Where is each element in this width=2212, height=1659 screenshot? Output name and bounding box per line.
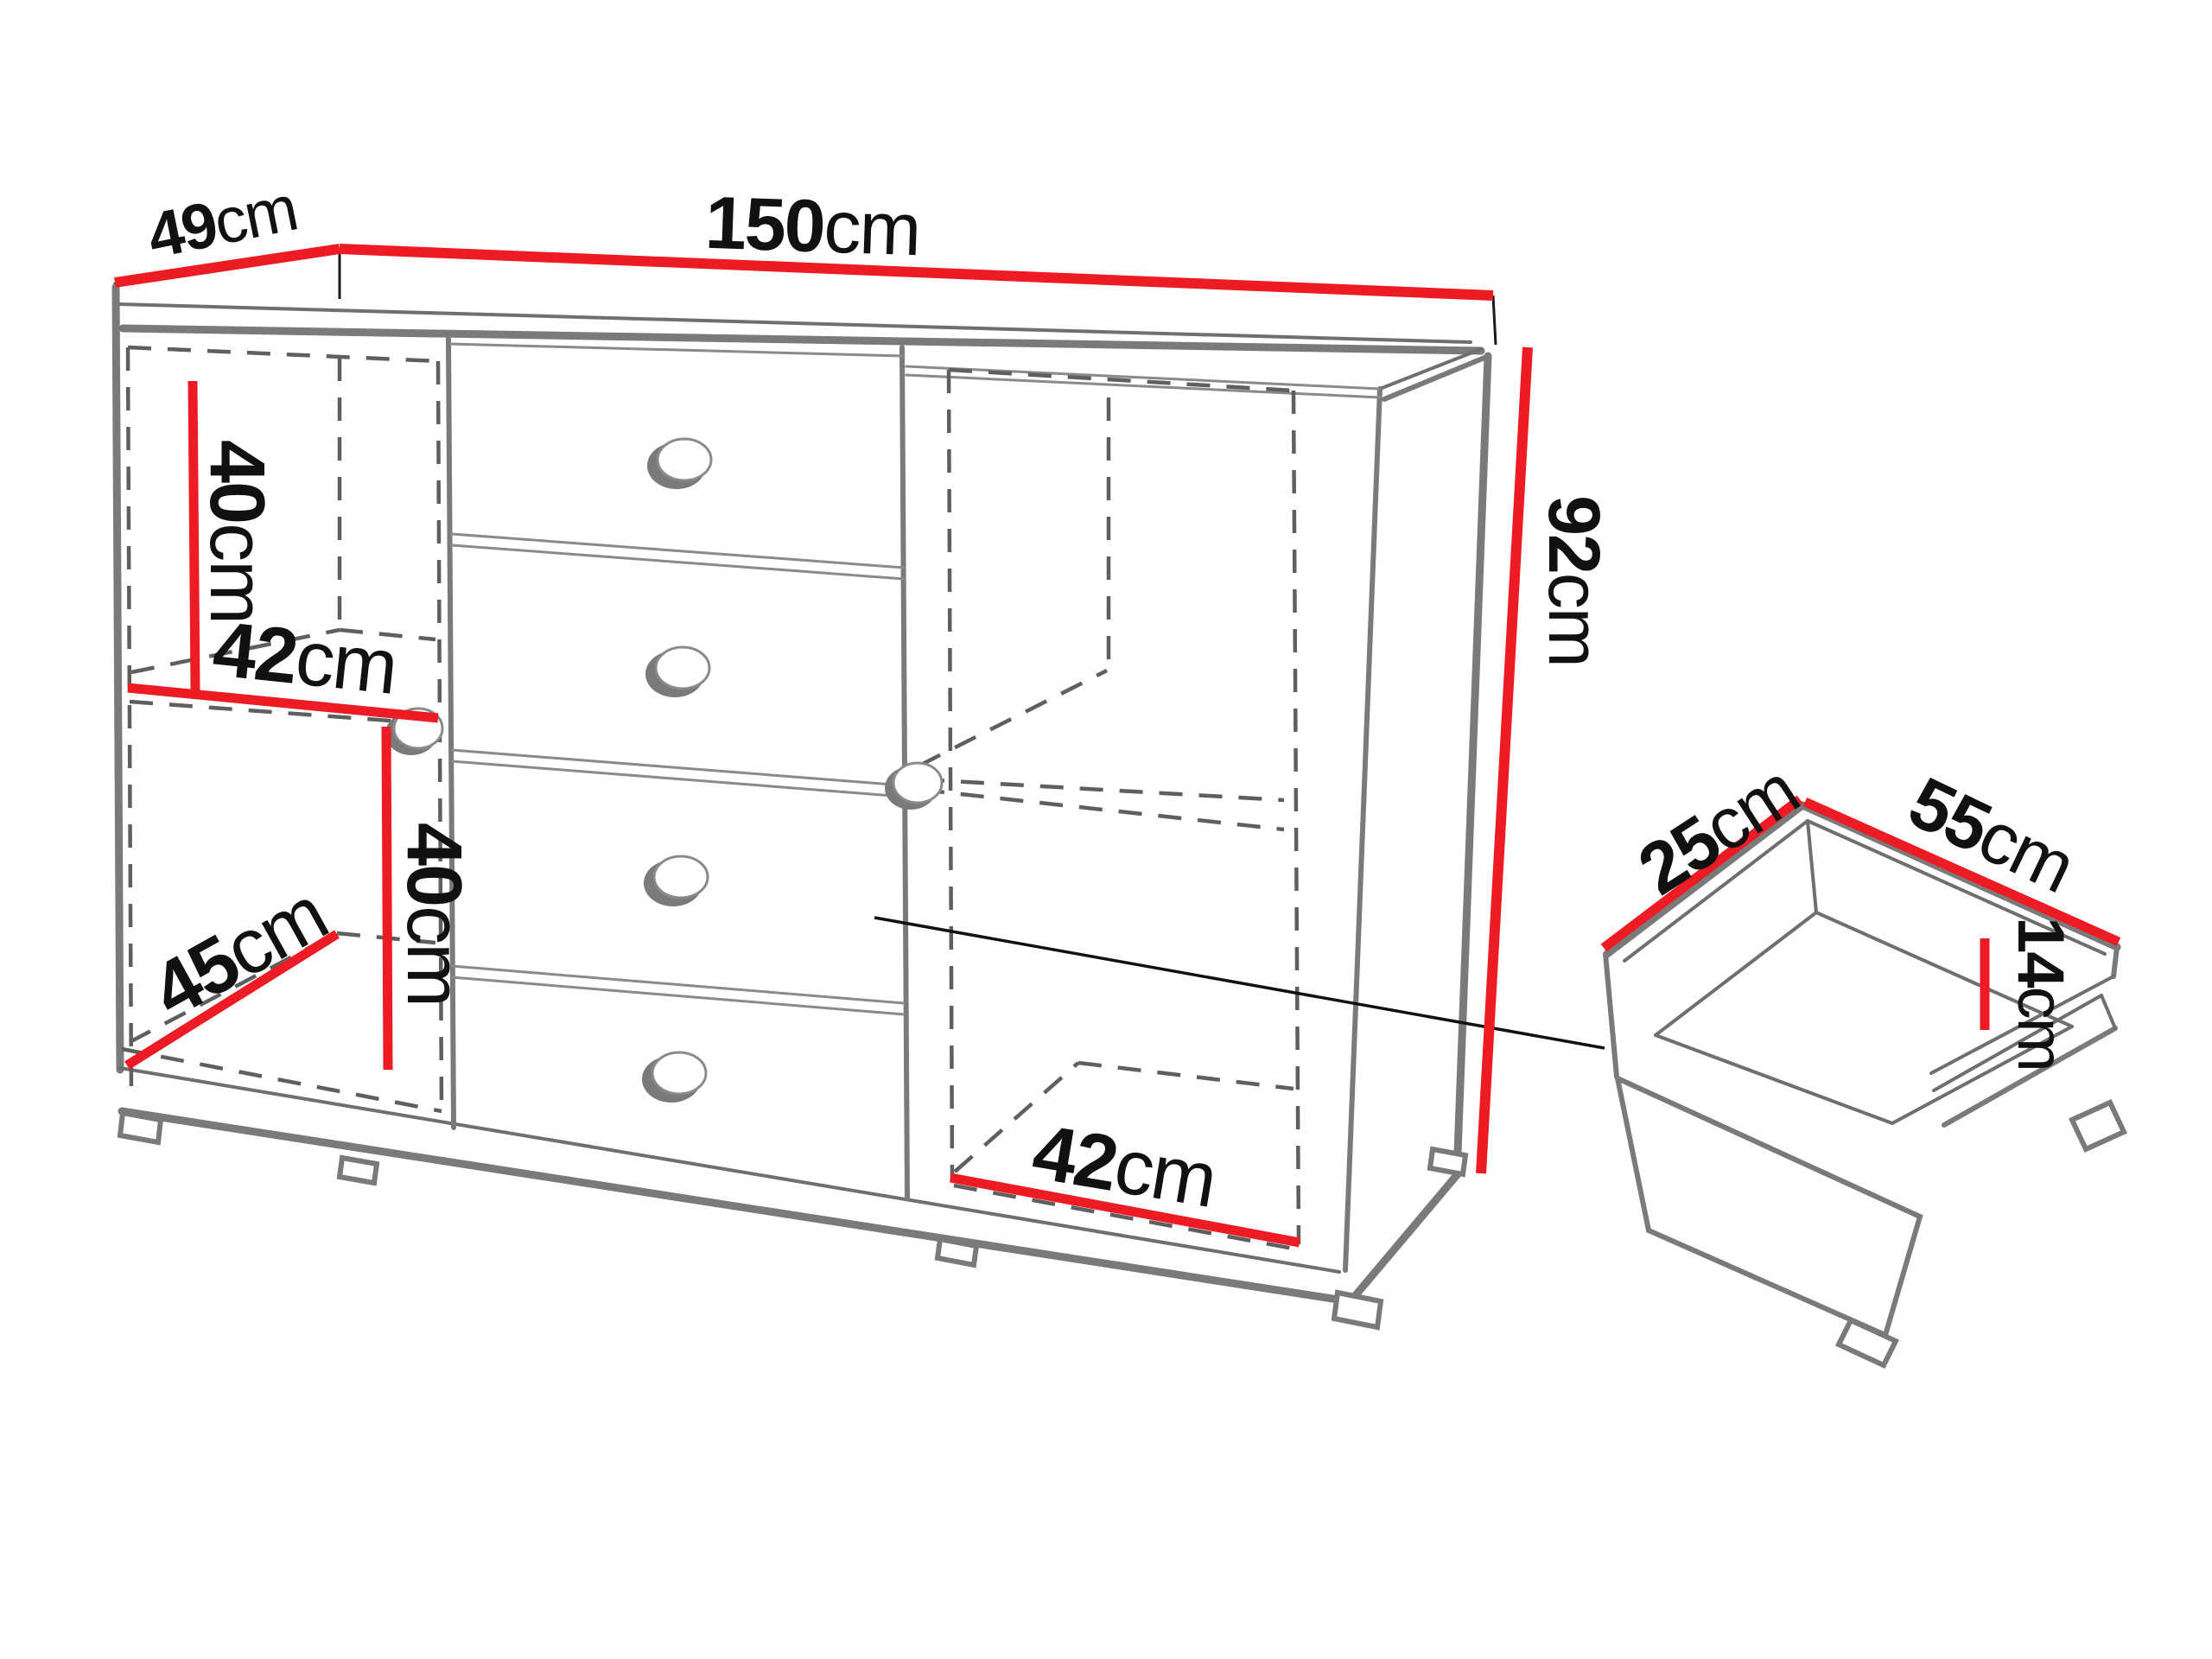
cabinet-outline	[116, 287, 1488, 1302]
label-width-150: 150cm	[704, 181, 921, 271]
dash-right	[1294, 391, 1299, 1244]
label-upper-40: 40cm	[194, 440, 280, 623]
right-wall-cap	[2113, 947, 2117, 976]
knob-face	[893, 763, 942, 803]
side-top-edge-b	[1384, 358, 1484, 399]
label-right-42: 42cm	[1027, 1109, 1222, 1224]
label-lower-40: 40cm	[391, 823, 477, 1006]
drawer-knob-1	[647, 439, 711, 489]
label-height-92: 92cm	[1534, 495, 1615, 665]
corner-tick-back-right	[1493, 296, 1496, 345]
dimension-labels: 49cm 150cm 92cm 40cm 42cm 40cm 45cm 42cm…	[138, 171, 2086, 1224]
label-drawer-25: 25cm	[1624, 749, 1812, 910]
foot-left-mid	[340, 1158, 377, 1183]
label-depth-45: 45cm	[138, 870, 340, 1034]
knob-face	[656, 647, 709, 689]
separator-3a	[452, 966, 904, 1003]
label-lower-40-value: 40	[391, 823, 477, 906]
dash-top	[128, 347, 438, 361]
dimension-diagram: 49cm 150cm 92cm 40cm 42cm 40cm 45cm 42cm…	[0, 0, 2212, 1659]
back-corner-inner	[1808, 821, 1816, 912]
label-depth-49-unit: cm	[208, 171, 302, 257]
knob-face	[654, 856, 708, 898]
right-door-edge	[1345, 389, 1380, 1270]
divider-left	[448, 339, 454, 1128]
drawer-knob-3	[644, 856, 708, 906]
foot-front-right	[1334, 1293, 1381, 1327]
right-door-knob	[885, 763, 942, 810]
left-edge	[116, 287, 120, 1070]
foot-back-right	[1430, 1149, 1465, 1174]
drawer-foot-right	[2072, 1103, 2124, 1149]
label-right-42-value: 42	[1027, 1109, 1122, 1207]
label-upper-40-value: 40	[194, 440, 280, 523]
side-outer-face	[1605, 954, 1617, 1077]
drawer-knob-4	[642, 1052, 706, 1103]
label-width-150-unit: cm	[823, 185, 921, 271]
label-drawer-14-value: 14	[2004, 917, 2077, 988]
dim-line-height-92	[1481, 347, 1528, 1173]
dash-ray-low	[921, 790, 1284, 829]
dash-ray-up	[919, 671, 1107, 766]
dash-bottom	[122, 1049, 442, 1111]
dash-left	[949, 370, 952, 1179]
drawer-stack	[450, 344, 904, 1103]
side-bottom-edge	[1355, 1175, 1457, 1296]
knob-face	[658, 439, 711, 480]
diagram-canvas: 49cm 150cm 92cm 40cm 42cm 40cm 45cm 42cm…	[0, 0, 2212, 1659]
label-width-150-value: 150	[704, 181, 826, 268]
dash-floor-back-r	[1078, 1063, 1294, 1089]
label-shelf-42-unit: cm	[292, 614, 401, 711]
foot-center	[938, 1239, 976, 1265]
label-height-92-unit: cm	[1534, 573, 1615, 666]
label-right-42-unit: cm	[1109, 1122, 1222, 1224]
cabinet-drawing	[115, 249, 1496, 1327]
rail-cap	[2101, 995, 2115, 1028]
dim-line-lower-40	[386, 727, 388, 1070]
carcass-top-edge	[123, 328, 1481, 351]
side-inner-base	[1656, 912, 1816, 1035]
drawer-top-edge	[450, 344, 904, 356]
label-drawer-14: 14cm	[2004, 917, 2077, 1071]
dash-left	[128, 347, 131, 1099]
label-lower-40-unit: cm	[391, 906, 477, 1006]
drawer-knob-2	[645, 647, 709, 697]
label-shelf-42-value: 42	[209, 606, 301, 700]
label-drawer-14-unit: cm	[2004, 987, 2077, 1071]
separator-3b	[452, 977, 904, 1014]
knob-face	[652, 1052, 706, 1094]
label-height-92-value: 92	[1534, 495, 1615, 572]
foot-front-left	[120, 1113, 161, 1142]
